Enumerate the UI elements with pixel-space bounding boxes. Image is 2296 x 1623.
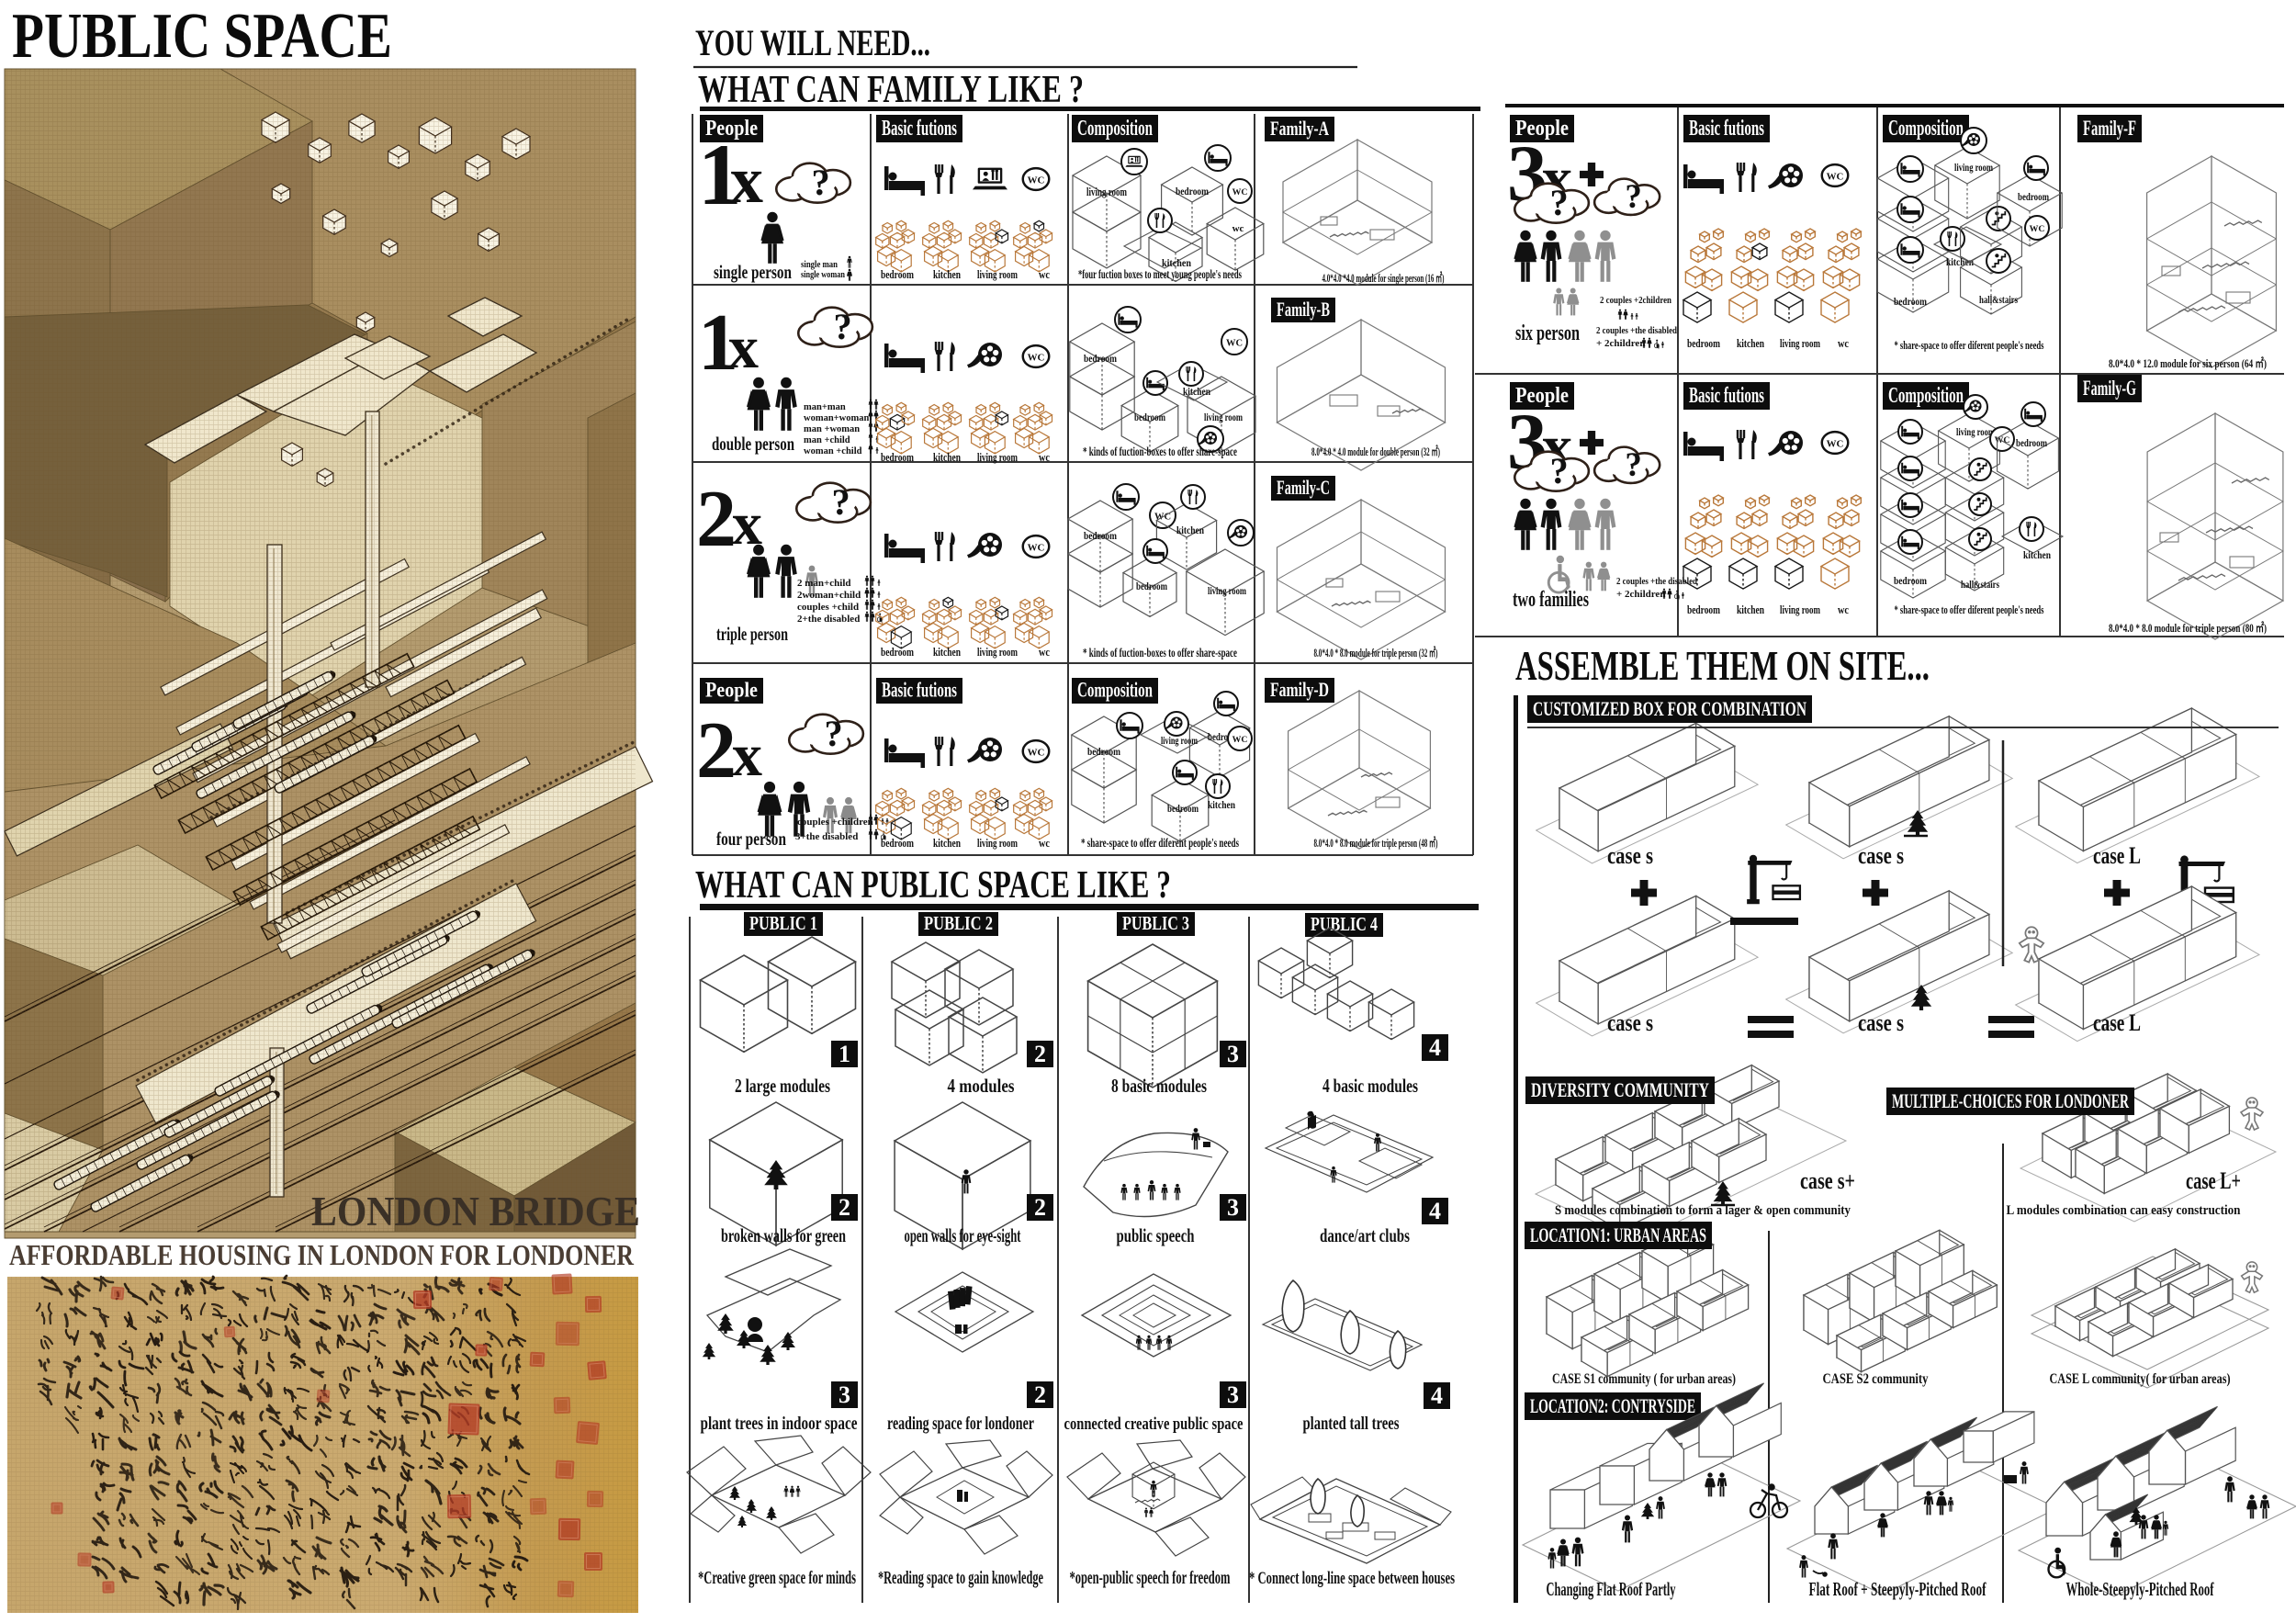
svg-text:case s: case s: [1607, 1009, 1653, 1036]
svg-text:* Connect long-line space betw: * Connect long-line space between houses: [1249, 1569, 1455, 1588]
svg-text:wc: wc: [1838, 603, 1849, 616]
svg-text:Composition: Composition: [1888, 117, 1964, 141]
svg-text:living room: living room: [977, 267, 1018, 281]
svg-text:* share-space to offer difere: * share-space to offer diferent people's…: [1081, 836, 1239, 850]
svg-text:WC: WC: [2030, 224, 2045, 234]
svg-text:Basic futions: Basic futions: [1689, 384, 1764, 408]
svg-text:2 couples +the disabled: 2 couples +the disabled: [1596, 325, 1677, 336]
svg-text:CASE S1 community ( for urban: CASE S1 community ( for urban areas): [1552, 1371, 1736, 1387]
svg-text:*Creative green space for mind: *Creative green space for minds: [698, 1568, 856, 1588]
svg-text:living room: living room: [1161, 736, 1198, 747]
svg-text:* share-space to offer difere: * share-space to offer diferent people's…: [1895, 338, 2044, 352]
svg-text:?: ?: [811, 162, 829, 203]
svg-text:Family-B: Family-B: [1277, 298, 1330, 321]
svg-text:L modules combination can easy: L modules combination can easy construct…: [2007, 1203, 2242, 1218]
svg-text:Family-A: Family-A: [1270, 117, 1329, 140]
svg-text:4 modules: 4 modules: [948, 1075, 1015, 1097]
svg-text:case L+: case L+: [2186, 1167, 2241, 1194]
svg-text:3: 3: [1227, 1194, 1239, 1221]
svg-text:4: 4: [1429, 1198, 1441, 1224]
svg-text:woman +child: woman +child: [804, 446, 862, 456]
svg-text:8.0*4.0 * 4.0 module for doubl: 8.0*4.0 * 4.0 module for double person (…: [1311, 445, 1440, 458]
svg-text:WC: WC: [1232, 187, 1248, 197]
svg-text:couples +child: couples +child: [797, 602, 859, 613]
svg-text:single person: single person: [714, 261, 792, 283]
svg-text:8.0*4.0 * 12.0 module for six: 8.0*4.0 * 12.0 module for six person (64…: [2109, 356, 2267, 370]
svg-text:living room: living room: [1086, 186, 1127, 198]
svg-text:WHAT CAN FAMILY LIKE ?: WHAT CAN FAMILY LIKE ?: [698, 69, 1084, 111]
svg-text:2+the disabled: 2+the disabled: [797, 614, 860, 625]
svg-text:4: 4: [1429, 1034, 1441, 1061]
svg-text:WC: WC: [1028, 542, 1045, 553]
svg-text:wc: wc: [1039, 836, 1050, 850]
svg-text:four person: four person: [716, 828, 786, 850]
svg-text:*Reading space to gain knowled: *Reading space to gain knowledge: [878, 1568, 1043, 1588]
svg-text:plant trees in indoor space: plant trees in indoor space: [701, 1414, 858, 1434]
svg-text:Composition: Composition: [1888, 384, 1964, 408]
svg-text:man +child: man +child: [804, 435, 850, 445]
svg-text:broken walls for green: broken walls for green: [721, 1224, 846, 1246]
svg-text:2: 2: [1034, 1194, 1046, 1221]
svg-text:2 large modules: 2 large modules: [735, 1075, 830, 1097]
svg-text:living room: living room: [1956, 425, 1995, 438]
svg-text:Changing Flat Roof Partly: Changing Flat Roof Partly: [1547, 1578, 1676, 1600]
svg-text:3: 3: [1227, 1041, 1239, 1067]
svg-text:CASE L community( for urban ar: CASE L community( for urban areas): [2050, 1371, 2231, 1387]
svg-text:2: 2: [1034, 1381, 1046, 1408]
svg-text:3: 3: [838, 1381, 850, 1408]
svg-text:2woman+child: 2woman+child: [797, 590, 861, 601]
svg-text:2: 2: [838, 1194, 850, 1221]
svg-text:WC: WC: [1827, 171, 1844, 182]
svg-text:WC: WC: [1827, 438, 1844, 449]
svg-text:WC: WC: [1226, 338, 1243, 348]
svg-text:x: x: [728, 314, 759, 381]
svg-text:living room: living room: [1208, 584, 1246, 597]
svg-text:4 basic modules: 4 basic modules: [1322, 1075, 1418, 1097]
svg-text:DIVERSITY COMMUNITY: DIVERSITY COMMUNITY: [1531, 1078, 1709, 1101]
svg-text:bedroom: bedroom: [1176, 185, 1209, 197]
svg-text:bedroom: bedroom: [1134, 412, 1165, 423]
svg-text:PUBLIC 2: PUBLIC 2: [924, 912, 993, 934]
svg-text:8 basic modules: 8 basic modules: [1111, 1075, 1207, 1097]
svg-text:?: ?: [1549, 450, 1568, 491]
svg-text:single woman: single woman: [801, 270, 845, 280]
svg-text:3+the disabled: 3+the disabled: [795, 831, 858, 842]
svg-text:?: ?: [1625, 445, 1641, 483]
svg-text:4: 4: [1431, 1382, 1443, 1409]
svg-text:bedroom: bedroom: [1687, 336, 1720, 350]
svg-text:bedroom: bedroom: [1087, 745, 1120, 758]
svg-text:bedroom: bedroom: [1894, 295, 1927, 308]
svg-text:bedroom: bedroom: [2018, 190, 2049, 203]
svg-text:Family-G: Family-G: [2083, 377, 2136, 400]
svg-text:case s: case s: [1858, 1009, 1904, 1036]
svg-text:YOU WILL NEED...: YOU WILL NEED...: [695, 22, 930, 63]
svg-text:bedroom: bedroom: [881, 267, 914, 281]
svg-text:case s+: case s+: [1800, 1167, 1855, 1194]
svg-text:LOCATION1: URBAN AREAS: LOCATION1: URBAN AREAS: [1530, 1223, 1706, 1246]
svg-text:*open-public speech for freedo: *open-public speech for freedom: [1070, 1568, 1231, 1588]
svg-text:Family-F: Family-F: [2083, 117, 2136, 140]
svg-text:Composition: Composition: [1077, 117, 1153, 141]
svg-text:living room: living room: [977, 836, 1018, 850]
svg-text:x: x: [730, 143, 763, 217]
svg-text:kitchen: kitchen: [933, 645, 962, 659]
svg-text:wc: wc: [1039, 645, 1050, 659]
svg-text:* kinds of fuction-boxes to o: * kinds of fuction-boxes to offer share-…: [1083, 445, 1237, 458]
svg-text:*four fuction boxes to meet yo: *four fuction boxes to meet young people…: [1078, 267, 1242, 281]
svg-text:Family-C: Family-C: [1277, 476, 1330, 499]
svg-text:+ 2children: + 2children: [1596, 338, 1645, 349]
svg-text:living room: living room: [977, 450, 1018, 464]
svg-text:woman+woman: woman+woman: [804, 413, 869, 423]
svg-text:living room: living room: [1780, 336, 1820, 350]
svg-text:?: ?: [831, 481, 850, 523]
svg-text:MULTIPLE-CHOICES FOR LONDONER: MULTIPLE-CHOICES FOR LONDONER: [1892, 1089, 2130, 1112]
svg-text:Family-D: Family-D: [1270, 678, 1329, 701]
svg-text:* share-space to offer difere: * share-space to offer diferent people's…: [1895, 603, 2044, 616]
svg-text:case L: case L: [2093, 842, 2141, 869]
svg-text:case L: case L: [2093, 1009, 2141, 1036]
svg-text:bedroom: bedroom: [1167, 804, 1199, 815]
svg-text:kitchen: kitchen: [933, 450, 962, 464]
svg-text:hall&stairs: hall&stairs: [1961, 578, 1999, 591]
svg-text:+ 2children: + 2children: [1616, 589, 1665, 600]
svg-text:man+man: man+man: [804, 402, 846, 412]
svg-text:WC: WC: [1028, 175, 1045, 186]
svg-text:WC: WC: [1028, 352, 1045, 363]
svg-text:living room: living room: [1204, 411, 1243, 423]
svg-text:WC: WC: [1232, 735, 1248, 745]
svg-text:4.0*4.0 *4.0 module for single: 4.0*4.0 *4.0 module for single person (1…: [1322, 271, 1445, 285]
svg-text:open walls for eye-sight: open walls for eye-sight: [905, 1224, 1021, 1246]
svg-text:S modules combination to form: S modules combination to form a lager & …: [1555, 1203, 1851, 1218]
svg-text:couples +children: couples +children: [797, 817, 873, 828]
svg-text:triple person: triple person: [716, 623, 788, 645]
svg-text:2 couples +2children: 2 couples +2children: [1600, 295, 1671, 306]
svg-text:* kinds of fuction-boxes to o: * kinds of fuction-boxes to offer share-…: [1083, 646, 1237, 659]
svg-text:PUBLIC 1: PUBLIC 1: [749, 912, 817, 934]
svg-text:Basic futions: Basic futions: [882, 117, 957, 141]
svg-text:man +woman: man +woman: [804, 424, 860, 434]
svg-text:WHAT CAN PUBLIC SPACE LIKE: WHAT CAN PUBLIC SPACE LIKE ?: [695, 864, 1171, 907]
svg-text:PUBLIC SPACE: PUBLIC SPACE: [12, 1, 392, 72]
svg-text:wc: wc: [1232, 223, 1244, 234]
svg-text:?: ?: [1625, 177, 1641, 215]
svg-text:8.0*4.0 * 8.0 module for tripl: 8.0*4.0 * 8.0 module for triple person (…: [1314, 836, 1438, 850]
svg-text:bedroom: bedroom: [1084, 529, 1117, 542]
svg-text:dance/art clubs: dance/art clubs: [1320, 1224, 1410, 1246]
svg-text:wc: wc: [1039, 450, 1050, 464]
svg-text:1: 1: [838, 1041, 850, 1067]
svg-text:public speech: public speech: [1117, 1224, 1195, 1246]
svg-text:kitchen: kitchen: [933, 836, 962, 850]
svg-text:connected creative public spac: connected creative public space: [1064, 1414, 1244, 1434]
svg-text:bedroom: bedroom: [1084, 352, 1117, 365]
svg-text:kitchen: kitchen: [933, 267, 962, 281]
svg-text:kitchen: kitchen: [1176, 525, 1204, 536]
svg-text:reading space for londoner: reading space for londoner: [887, 1414, 1034, 1434]
svg-text:bedroom: bedroom: [881, 836, 914, 850]
svg-text:AFFORDABLE HOUSING IN LONDON F: AFFORDABLE HOUSING IN LONDON FOR LONDONE…: [9, 1238, 635, 1271]
svg-text:bedroom: bedroom: [881, 450, 914, 464]
svg-text:People: People: [705, 679, 758, 702]
svg-text:bedroom: bedroom: [1687, 603, 1720, 616]
svg-text:wc: wc: [1039, 267, 1050, 281]
svg-text:bedroom: bedroom: [1136, 581, 1167, 592]
svg-text:2: 2: [696, 706, 737, 795]
svg-text:six person: six person: [1515, 321, 1580, 345]
svg-text:kitchen: kitchen: [2023, 548, 2051, 561]
svg-text:3: 3: [1227, 1381, 1239, 1408]
svg-text:Flat Roof + Steepyly-Pitched: Flat Roof + Steepyly-Pitched Roof: [1809, 1578, 1987, 1600]
svg-text:PUBLIC 4: PUBLIC 4: [1311, 913, 1378, 935]
svg-text:2: 2: [1034, 1041, 1046, 1067]
svg-text:two families: two families: [1513, 588, 1589, 612]
svg-text:Composition: Composition: [1077, 679, 1153, 702]
svg-text:PUBLIC 3: PUBLIC 3: [1122, 912, 1189, 934]
svg-text:double person: double person: [712, 433, 794, 455]
svg-text:hall&stairs: hall&stairs: [1979, 293, 2018, 306]
svg-text:wc: wc: [1838, 336, 1849, 350]
svg-text:planted tall trees: planted tall trees: [1303, 1414, 1400, 1434]
svg-text:single man: single man: [801, 260, 838, 270]
svg-text:kitchen: kitchen: [1737, 336, 1765, 350]
svg-text:?: ?: [833, 306, 851, 347]
svg-text:LOCATION2: CONTRYSIDE: LOCATION2: CONTRYSIDE: [1530, 1394, 1695, 1417]
svg-text:kitchen: kitchen: [1737, 603, 1765, 616]
svg-text:living room: living room: [977, 645, 1018, 659]
svg-text:LONDON BRIDGE: LONDON BRIDGE: [311, 1189, 640, 1234]
svg-text:8.0*4.0 * 8.0 module for tripl: 8.0*4.0 * 8.0 module for triple person (…: [1314, 646, 1438, 659]
svg-text:Basic futions: Basic futions: [1689, 117, 1764, 141]
svg-text:ASSEMBLE THEM ON SITE...: ASSEMBLE THEM ON SITE...: [1515, 642, 1930, 689]
svg-text:case s: case s: [1858, 842, 1904, 869]
svg-text:Basic futions: Basic futions: [882, 679, 957, 702]
svg-text:case s: case s: [1607, 842, 1653, 869]
svg-text:Whole-Steepyly-Pitched Roof: Whole-Steepyly-Pitched Roof: [2066, 1578, 2215, 1600]
svg-text:2: 2: [696, 475, 737, 564]
svg-text:living room: living room: [1780, 603, 1820, 616]
svg-text:living room: living room: [1954, 161, 1993, 174]
svg-text:?: ?: [1549, 182, 1568, 223]
svg-text:bedroom: bedroom: [1894, 574, 1927, 587]
svg-text:kitchen: kitchen: [1208, 800, 1235, 811]
svg-text:CUSTOMIZED BOX FOR COMBINATIO: CUSTOMIZED BOX FOR COMBINATION: [1533, 697, 1806, 720]
svg-text:CASE S2 community: CASE S2 community: [1823, 1371, 1929, 1387]
svg-text:bedroom: bedroom: [2016, 436, 2047, 449]
svg-text:?: ?: [824, 713, 842, 754]
svg-text:2 man+child: 2 man+child: [797, 578, 851, 589]
svg-text:bedroom: bedroom: [881, 645, 914, 659]
svg-text:WC: WC: [1028, 747, 1045, 758]
svg-text:x: x: [732, 722, 762, 789]
svg-text:8.0*4.0 * 8.0 module for tripl: 8.0*4.0 * 8.0 module for triple person (…: [2109, 621, 2267, 635]
